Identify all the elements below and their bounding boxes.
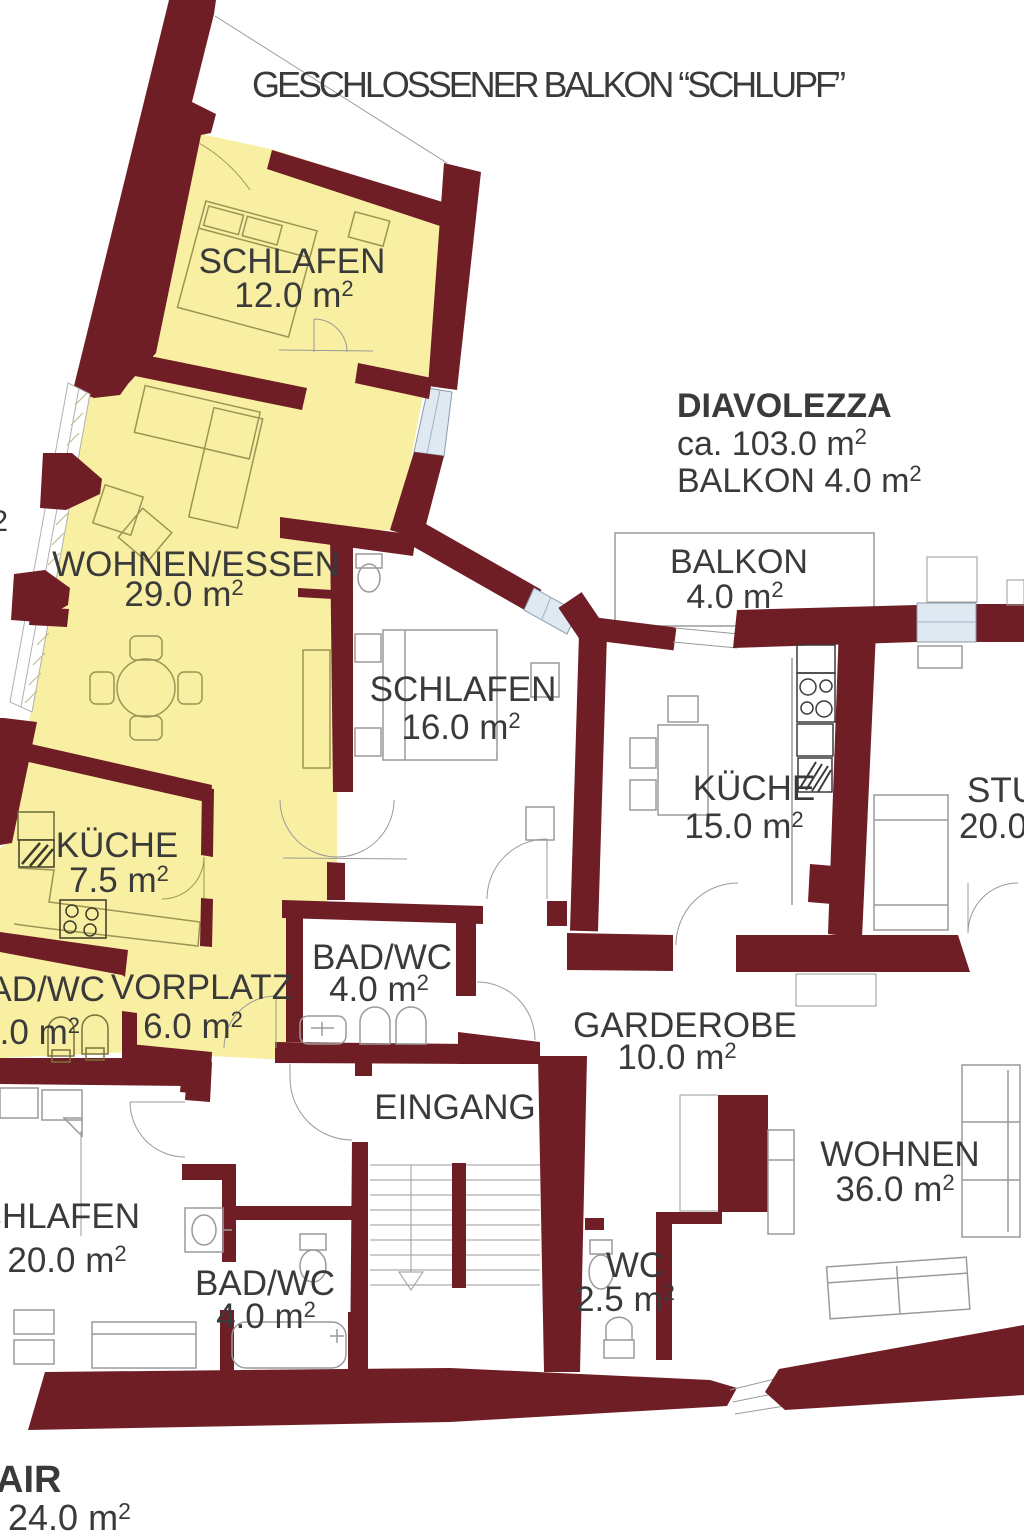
svg-text:KÜCHE: KÜCHE xyxy=(56,826,179,865)
svg-text:VORPLATZ: VORPLATZ xyxy=(111,968,293,1007)
svg-text:WOHNEN: WOHNEN xyxy=(820,1135,979,1174)
svg-text:7.5 m2: 7.5 m2 xyxy=(69,861,169,900)
svg-text:36.0 m2: 36.0 m2 xyxy=(835,1170,954,1209)
svg-text:BALKON 4.0 m2: BALKON 4.0 m2 xyxy=(677,461,922,500)
svg-text:DIAVOLEZZA: DIAVOLEZZA xyxy=(677,387,892,425)
svg-text:AIR: AIR xyxy=(0,1459,61,1501)
svg-text:SCHLAFEN: SCHLAFEN xyxy=(370,670,557,709)
svg-text:15.0 m2: 15.0 m2 xyxy=(684,807,803,846)
svg-text:GESCHLOSSENER BALKON “SCHLUPF”: GESCHLOSSENER BALKON “SCHLUPF” xyxy=(252,64,846,105)
svg-text:10.0 m2: 10.0 m2 xyxy=(617,1038,736,1077)
svg-text:KÜCHE: KÜCHE xyxy=(693,769,816,808)
svg-text:BALKON: BALKON xyxy=(670,543,808,581)
svg-text:6.0 m2: 6.0 m2 xyxy=(143,1007,243,1046)
svg-text:20.0 m2: 20.0 m2 xyxy=(959,807,1024,846)
svg-text:20.0 m2: 20.0 m2 xyxy=(7,1241,126,1280)
svg-text:SCHLAFEN: SCHLAFEN xyxy=(0,1197,140,1236)
svg-text:2: 2 xyxy=(0,505,8,538)
svg-text:2.5 m2: 2.5 m2 xyxy=(575,1280,675,1319)
svg-text:EINGANG: EINGANG xyxy=(374,1088,535,1127)
svg-text:12.0 m2: 12.0 m2 xyxy=(234,276,353,315)
svg-text:STUBE: STUBE xyxy=(967,771,1024,810)
svg-text:4.0 m2: 4.0 m2 xyxy=(216,1297,316,1336)
svg-text:BAD/WC: BAD/WC xyxy=(0,970,105,1009)
svg-text:4.0 m2: 4.0 m2 xyxy=(329,970,429,1009)
svg-text:16.0 m2: 16.0 m2 xyxy=(401,708,520,747)
svg-text:ca. 103.0 m2: ca. 103.0 m2 xyxy=(677,424,867,463)
svg-text:29.0 m2: 29.0 m2 xyxy=(124,575,243,614)
svg-text:. 24.0 m2: . 24.0 m2 xyxy=(0,1497,131,1536)
